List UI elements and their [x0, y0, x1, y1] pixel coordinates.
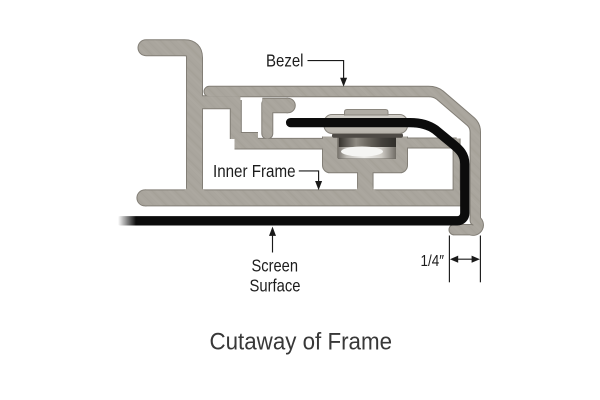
svg-text:1/4″: 1/4″ — [421, 253, 445, 270]
svg-text:Cutaway of Frame: Cutaway of Frame — [210, 329, 393, 356]
svg-text:Screen: Screen — [252, 255, 299, 275]
svg-text:Surface: Surface — [250, 276, 301, 296]
svg-text:Inner Frame: Inner Frame — [213, 161, 296, 181]
svg-text:Bezel: Bezel — [266, 50, 304, 70]
